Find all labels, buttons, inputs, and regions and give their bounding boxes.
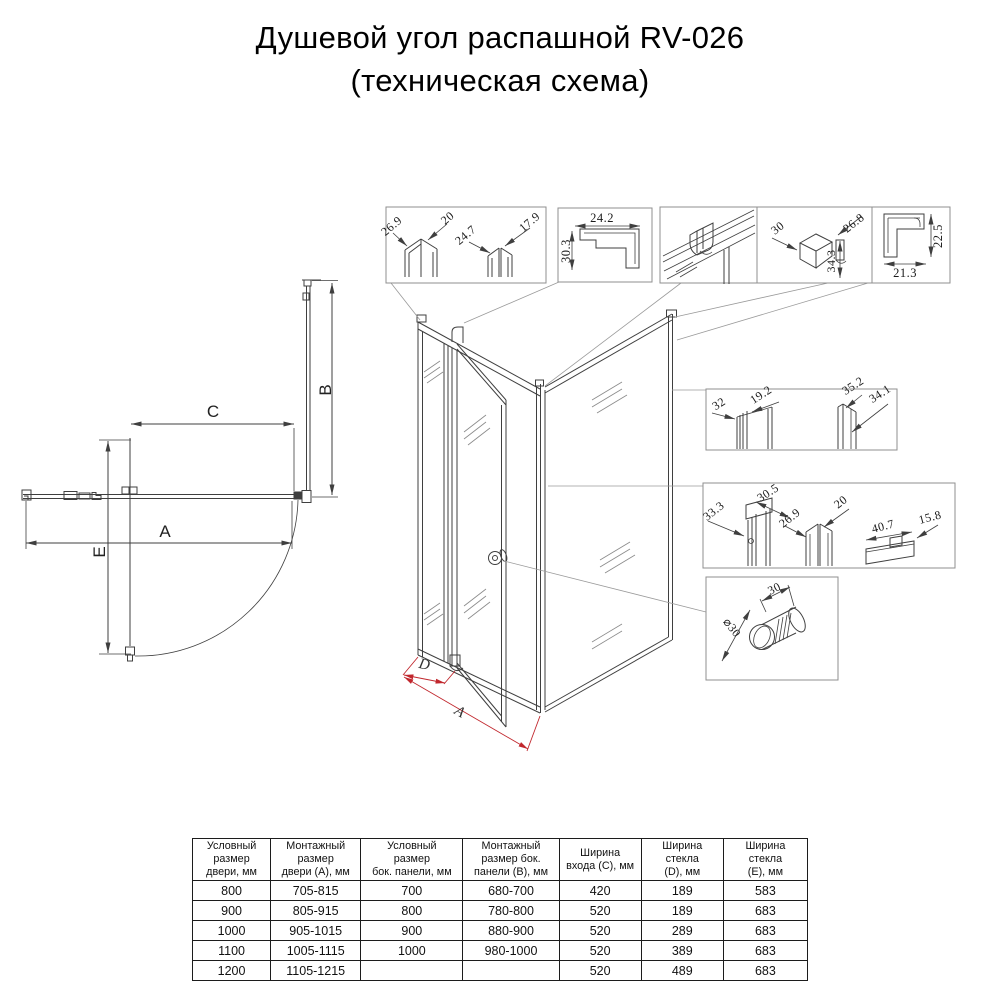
page: Душевой угол распашной RV-026 (техническ… [0,0,1000,1000]
table-row: 11001005-11151000980-1000520389683 [193,941,808,961]
table-cell: 520 [559,941,641,961]
table-cell: 700 [361,881,463,901]
table-cell: 1200 [193,961,271,981]
table-cell: 189 [641,881,723,901]
table-cell: 1105-1215 [271,961,361,981]
glass-hatch [424,361,635,649]
dim-label: 33.3 [700,498,727,523]
table-cell: 680-700 [463,881,559,901]
table-cell: 520 [559,961,641,981]
detail-wall-profiles [708,498,938,566]
table-cell: 900 [193,901,271,921]
dim-label: 20 [831,492,850,511]
plan-dim-label-e: E [90,546,109,557]
dim-label: 32 [710,394,729,413]
table-cell: 1100 [193,941,271,961]
table-row: 12001105-1215520489683 [193,961,808,981]
table-cell: 489 [641,961,723,981]
dim-label: 24.2 [590,211,614,225]
table-cell [361,961,463,981]
table-cell: 800 [361,901,463,921]
table-row: 1000905-1015900880-900520289683 [193,921,808,941]
dim-label: 20 [438,208,457,227]
table-header-entry-width: Ширина входа (C), мм [559,839,641,881]
dim-label: 15.8 [917,507,943,526]
dim-label: 26.9 [378,213,405,239]
table-row: 900805-915800780-800520189683 [193,901,808,921]
table-header-panel-mounting: Монтажный размер бок. панели (B), мм [463,839,559,881]
table-row: 800705-815700680-700420189583 [193,881,808,901]
dim-label: 30.5 [754,481,781,505]
table-cell: 683 [723,921,807,941]
dim-label: 17.9 [516,209,543,235]
table-cell: 520 [559,921,641,941]
table-cell: 389 [641,941,723,961]
table-header-door-nominal: Условный размер двери, мм [193,839,271,881]
table-header-row: Условный размер двери, мм Монтажный разм… [193,839,808,881]
table-cell: 289 [641,921,723,941]
callout-box-frames [386,207,955,680]
plan-dim-label-b: B [316,384,335,395]
table-cell: 520 [559,901,641,921]
dim-label: 24.7 [452,222,479,248]
iso-dim-label-d: D [416,656,431,674]
dim-label: 19.2 [747,383,774,407]
detail-corner-profile [572,226,640,270]
table-cell: 1005-1115 [271,941,361,961]
dim-label: 35.2 [839,374,866,398]
spec-table-container: Условный размер двери, мм Монтажный разм… [192,838,808,981]
table-cell: 800 [193,881,271,901]
table-cell: 683 [723,941,807,961]
table-cell: 189 [641,901,723,921]
table-cell: 1000 [361,941,463,961]
dim-label: 34.3 [824,250,838,273]
table-cell: 583 [723,881,807,901]
table-cell: 905-1015 [271,921,361,941]
plan-view [22,280,338,661]
detail-door-jamb [712,395,888,449]
detail-hinge [663,210,755,284]
spec-table-body: 800705-815700680-700420189583900805-9158… [193,881,808,981]
table-header-glass-e: Ширина стекла (E), мм [723,839,807,881]
dim-label: 30 [768,218,787,237]
table-cell: 780-800 [463,901,559,921]
table-cell: 805-915 [271,901,361,921]
dim-label: ⌀30 [720,615,744,640]
plan-dim-label-a: A [159,522,171,541]
iso-view [403,310,677,751]
detail-l-profile [884,214,931,264]
table-cell: 900 [361,921,463,941]
dim-label: 26.8 [840,210,867,235]
table-cell: 420 [559,881,641,901]
dim-label: 21.3 [893,266,917,280]
table-header-door-mounting: Монтажный размер двери (A), мм [271,839,361,881]
table-header-glass-d: Ширина стекла (D), мм [641,839,723,881]
dim-label: 22.5 [931,224,945,248]
table-cell: 980-1000 [463,941,559,961]
dim-label: 34.1 [866,382,893,406]
table-cell: 683 [723,961,807,981]
dim-label: 40.7 [870,516,896,535]
spec-table: Условный размер двери, мм Монтажный разм… [192,838,808,981]
table-cell: 683 [723,901,807,921]
table-header-panel-nominal: Условный размер бок. панели, мм [361,839,463,881]
dim-label: 30 [765,579,783,597]
table-cell: 705-815 [271,881,361,901]
dim-label: 26.9 [776,505,803,530]
table-cell: 1000 [193,921,271,941]
table-cell [463,961,559,981]
dim-label: 30.3 [559,239,573,263]
plan-dim-label-c: C [207,402,219,421]
table-cell: 880-900 [463,921,559,941]
